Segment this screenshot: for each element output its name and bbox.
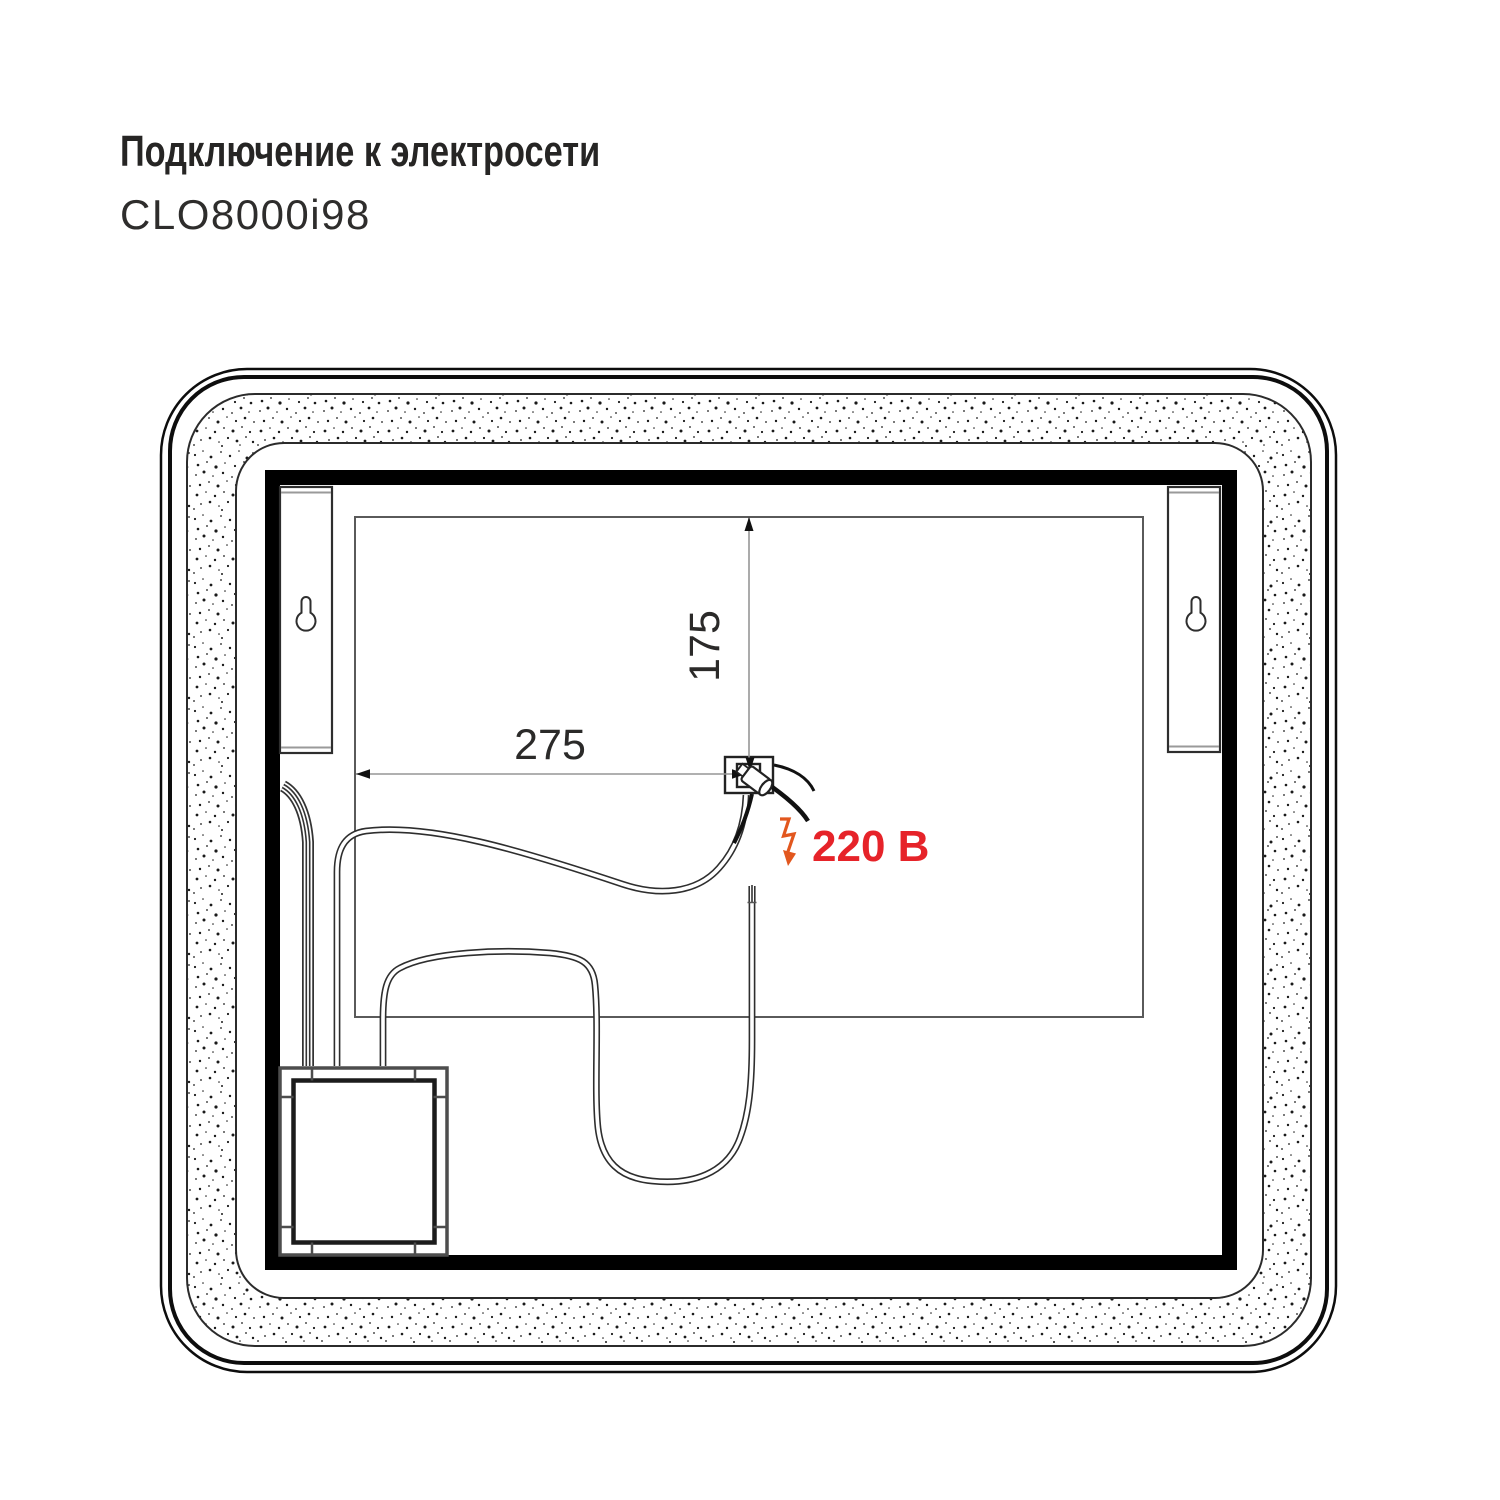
mounting-bracket-right — [1168, 487, 1220, 752]
voltage-annotation: 220 В — [780, 819, 929, 871]
voltage-bolt-icon — [780, 819, 794, 853]
instruction-page: Подключение к электросети CLO8000i98 — [0, 0, 1500, 1500]
dim-horizontal-label: 275 — [514, 721, 586, 769]
wiring-diagram: 175 275 220 В — [0, 0, 1500, 1500]
dimension-lines: 175 275 — [356, 517, 755, 779]
mounting-bracket-left — [280, 487, 332, 753]
voltage-bolt-arrowhead — [783, 850, 796, 866]
voltage-label: 220 В — [812, 822, 929, 871]
arrow-up — [745, 517, 754, 531]
stripped-wire-end — [748, 885, 757, 903]
cable-bundle — [283, 786, 308, 1066]
dim-vertical-label: 175 — [681, 610, 729, 682]
cable-to-socket — [337, 795, 746, 1066]
driver-box — [280, 1068, 447, 1255]
arrow-left — [356, 769, 370, 779]
